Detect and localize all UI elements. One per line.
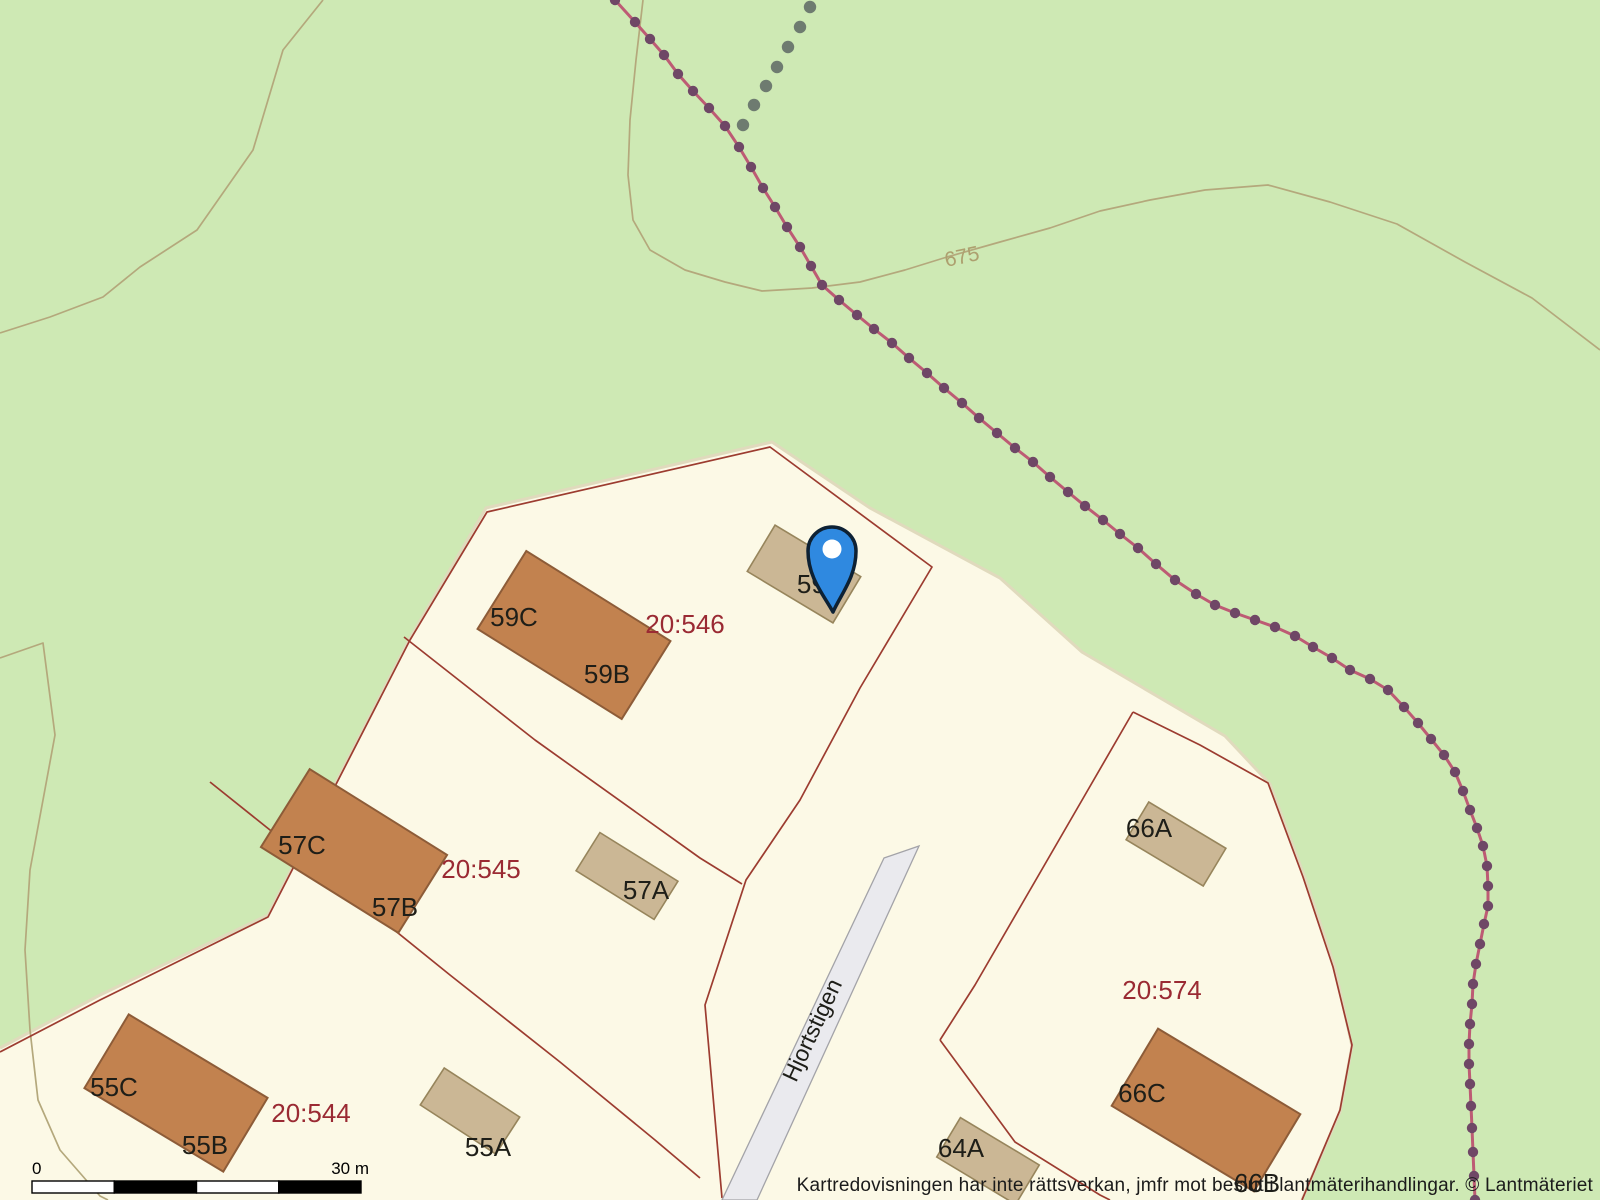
parcel-number-label: 20:574	[1122, 975, 1202, 1005]
trail-dot-gray	[804, 1, 816, 13]
trail-dot	[992, 428, 1002, 438]
trail-dot	[1010, 443, 1020, 453]
trail-dot	[1063, 487, 1073, 497]
trail-dot	[734, 142, 744, 152]
trail-dot	[922, 368, 932, 378]
trail-dot	[1467, 999, 1477, 1009]
trail-dot	[1308, 642, 1318, 652]
trail-dot	[1210, 600, 1220, 610]
building-label: 64A	[938, 1133, 985, 1163]
trail-dot	[869, 324, 879, 334]
trail-dot-gray	[782, 41, 794, 53]
trail-dot	[1115, 529, 1125, 539]
trail-dot	[1483, 901, 1493, 911]
trail-dot	[1250, 615, 1260, 625]
trail-dot	[1471, 959, 1481, 969]
trail-dot	[1133, 543, 1143, 553]
trail-dot	[758, 183, 768, 193]
trail-dot	[770, 202, 780, 212]
pin-hole	[823, 540, 842, 559]
trail-dot-gray	[794, 21, 806, 33]
scale-bar-segment	[279, 1181, 361, 1193]
trail-dot	[746, 162, 756, 172]
trail-dot	[852, 310, 862, 320]
trail-dot	[1191, 589, 1201, 599]
scale-bar-segment	[197, 1181, 279, 1193]
trail-dot	[1478, 841, 1488, 851]
trail-dot	[1465, 805, 1475, 815]
trail-dot	[1450, 767, 1460, 777]
trail-dot	[1439, 750, 1449, 760]
trail-dot	[974, 413, 984, 423]
map-canvas[interactable]: 675Hjortstigen59C59B59A57C57B57A55C55B55…	[0, 0, 1600, 1200]
trail-dot	[1475, 939, 1485, 949]
trail-dot	[1413, 718, 1423, 728]
scale-start-label: 0	[32, 1159, 41, 1178]
parcel-number-label: 20:545	[441, 854, 521, 884]
building-label: 55B	[182, 1130, 228, 1160]
trail-dot	[1472, 823, 1482, 833]
map-viewport[interactable]: 675Hjortstigen59C59B59A57C57B57A55C55B55…	[0, 0, 1600, 1200]
trail-dot	[904, 353, 914, 363]
trail-dot	[1028, 457, 1038, 467]
trail-dot	[1399, 702, 1409, 712]
trail-dot	[1482, 861, 1492, 871]
building-label: 59C	[490, 602, 538, 632]
trail-dot	[630, 17, 640, 27]
trail-dot	[939, 383, 949, 393]
parcel-number-label: 20:544	[271, 1098, 351, 1128]
trail-dot	[1151, 559, 1161, 569]
building-label: 57C	[278, 830, 326, 860]
trail-dot	[957, 398, 967, 408]
building-label: 55C	[90, 1072, 138, 1102]
trail-dot-gray	[748, 99, 760, 111]
building-label: 66A	[1126, 813, 1173, 843]
scale-end-label: 30 m	[331, 1159, 369, 1178]
trail-dot	[1458, 786, 1468, 796]
trail-dot	[1479, 919, 1489, 929]
building-label: 55A	[465, 1132, 512, 1162]
trail-dot	[1466, 1101, 1476, 1111]
trail-dot	[1045, 472, 1055, 482]
trail-dot-gray	[760, 80, 772, 92]
trail-dot	[1467, 1123, 1477, 1133]
trail-dot	[806, 261, 816, 271]
trail-dot	[1345, 665, 1355, 675]
trail-dot	[1230, 608, 1240, 618]
scale-bar-segment	[32, 1181, 114, 1193]
trail-dot-gray	[771, 61, 783, 73]
trail-dot-gray	[737, 119, 749, 131]
trail-dot	[1464, 1059, 1474, 1069]
building-label: 59B	[584, 659, 630, 689]
trail-dot	[782, 222, 792, 232]
trail-dot	[720, 121, 730, 131]
trail-dot	[1426, 734, 1436, 744]
parcel-number-label: 20:546	[645, 609, 725, 639]
trail-dot	[1468, 979, 1478, 989]
trail-dot	[1290, 631, 1300, 641]
building-label: 57A	[623, 875, 670, 905]
trail-dot	[1483, 881, 1493, 891]
trail-dot	[645, 34, 655, 44]
trail-dot	[1464, 1039, 1474, 1049]
trail-dot	[1080, 501, 1090, 511]
trail-dot	[1468, 1147, 1478, 1157]
trail-dot	[673, 69, 683, 79]
trail-dot	[1465, 1019, 1475, 1029]
scale-bar-segment	[114, 1181, 196, 1193]
map-attribution: Kartredovisningen har inte rättsverkan, …	[797, 1175, 1593, 1197]
trail-dot	[834, 295, 844, 305]
trail-dot	[1270, 622, 1280, 632]
trail-dot	[688, 86, 698, 96]
trail-dot	[704, 103, 714, 113]
building-label: 57B	[372, 892, 418, 922]
trail-dot	[1465, 1079, 1475, 1089]
building-label: 66C	[1118, 1078, 1166, 1108]
trail-dot	[659, 50, 669, 60]
trail-dot	[887, 338, 897, 348]
trail-dot	[1383, 685, 1393, 695]
trail-dot	[1098, 515, 1108, 525]
trail-dot	[1365, 674, 1375, 684]
trail-dot	[1170, 575, 1180, 585]
trail-dot	[1327, 653, 1337, 663]
trail-dot	[795, 242, 805, 252]
trail-dot	[817, 280, 827, 290]
